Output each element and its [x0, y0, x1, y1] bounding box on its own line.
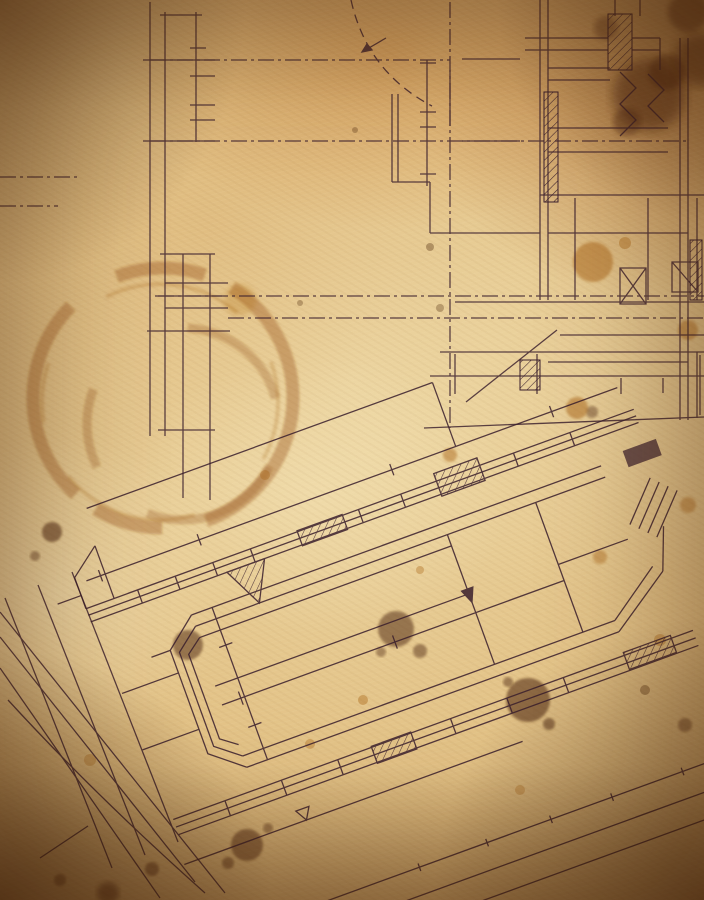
blueprint-page — [0, 0, 704, 900]
ink-blots — [30, 0, 704, 900]
canal-basin-structure — [30, 310, 704, 900]
blueprint-drawing — [0, 0, 704, 900]
coffee-ring-stain — [33, 268, 318, 559]
